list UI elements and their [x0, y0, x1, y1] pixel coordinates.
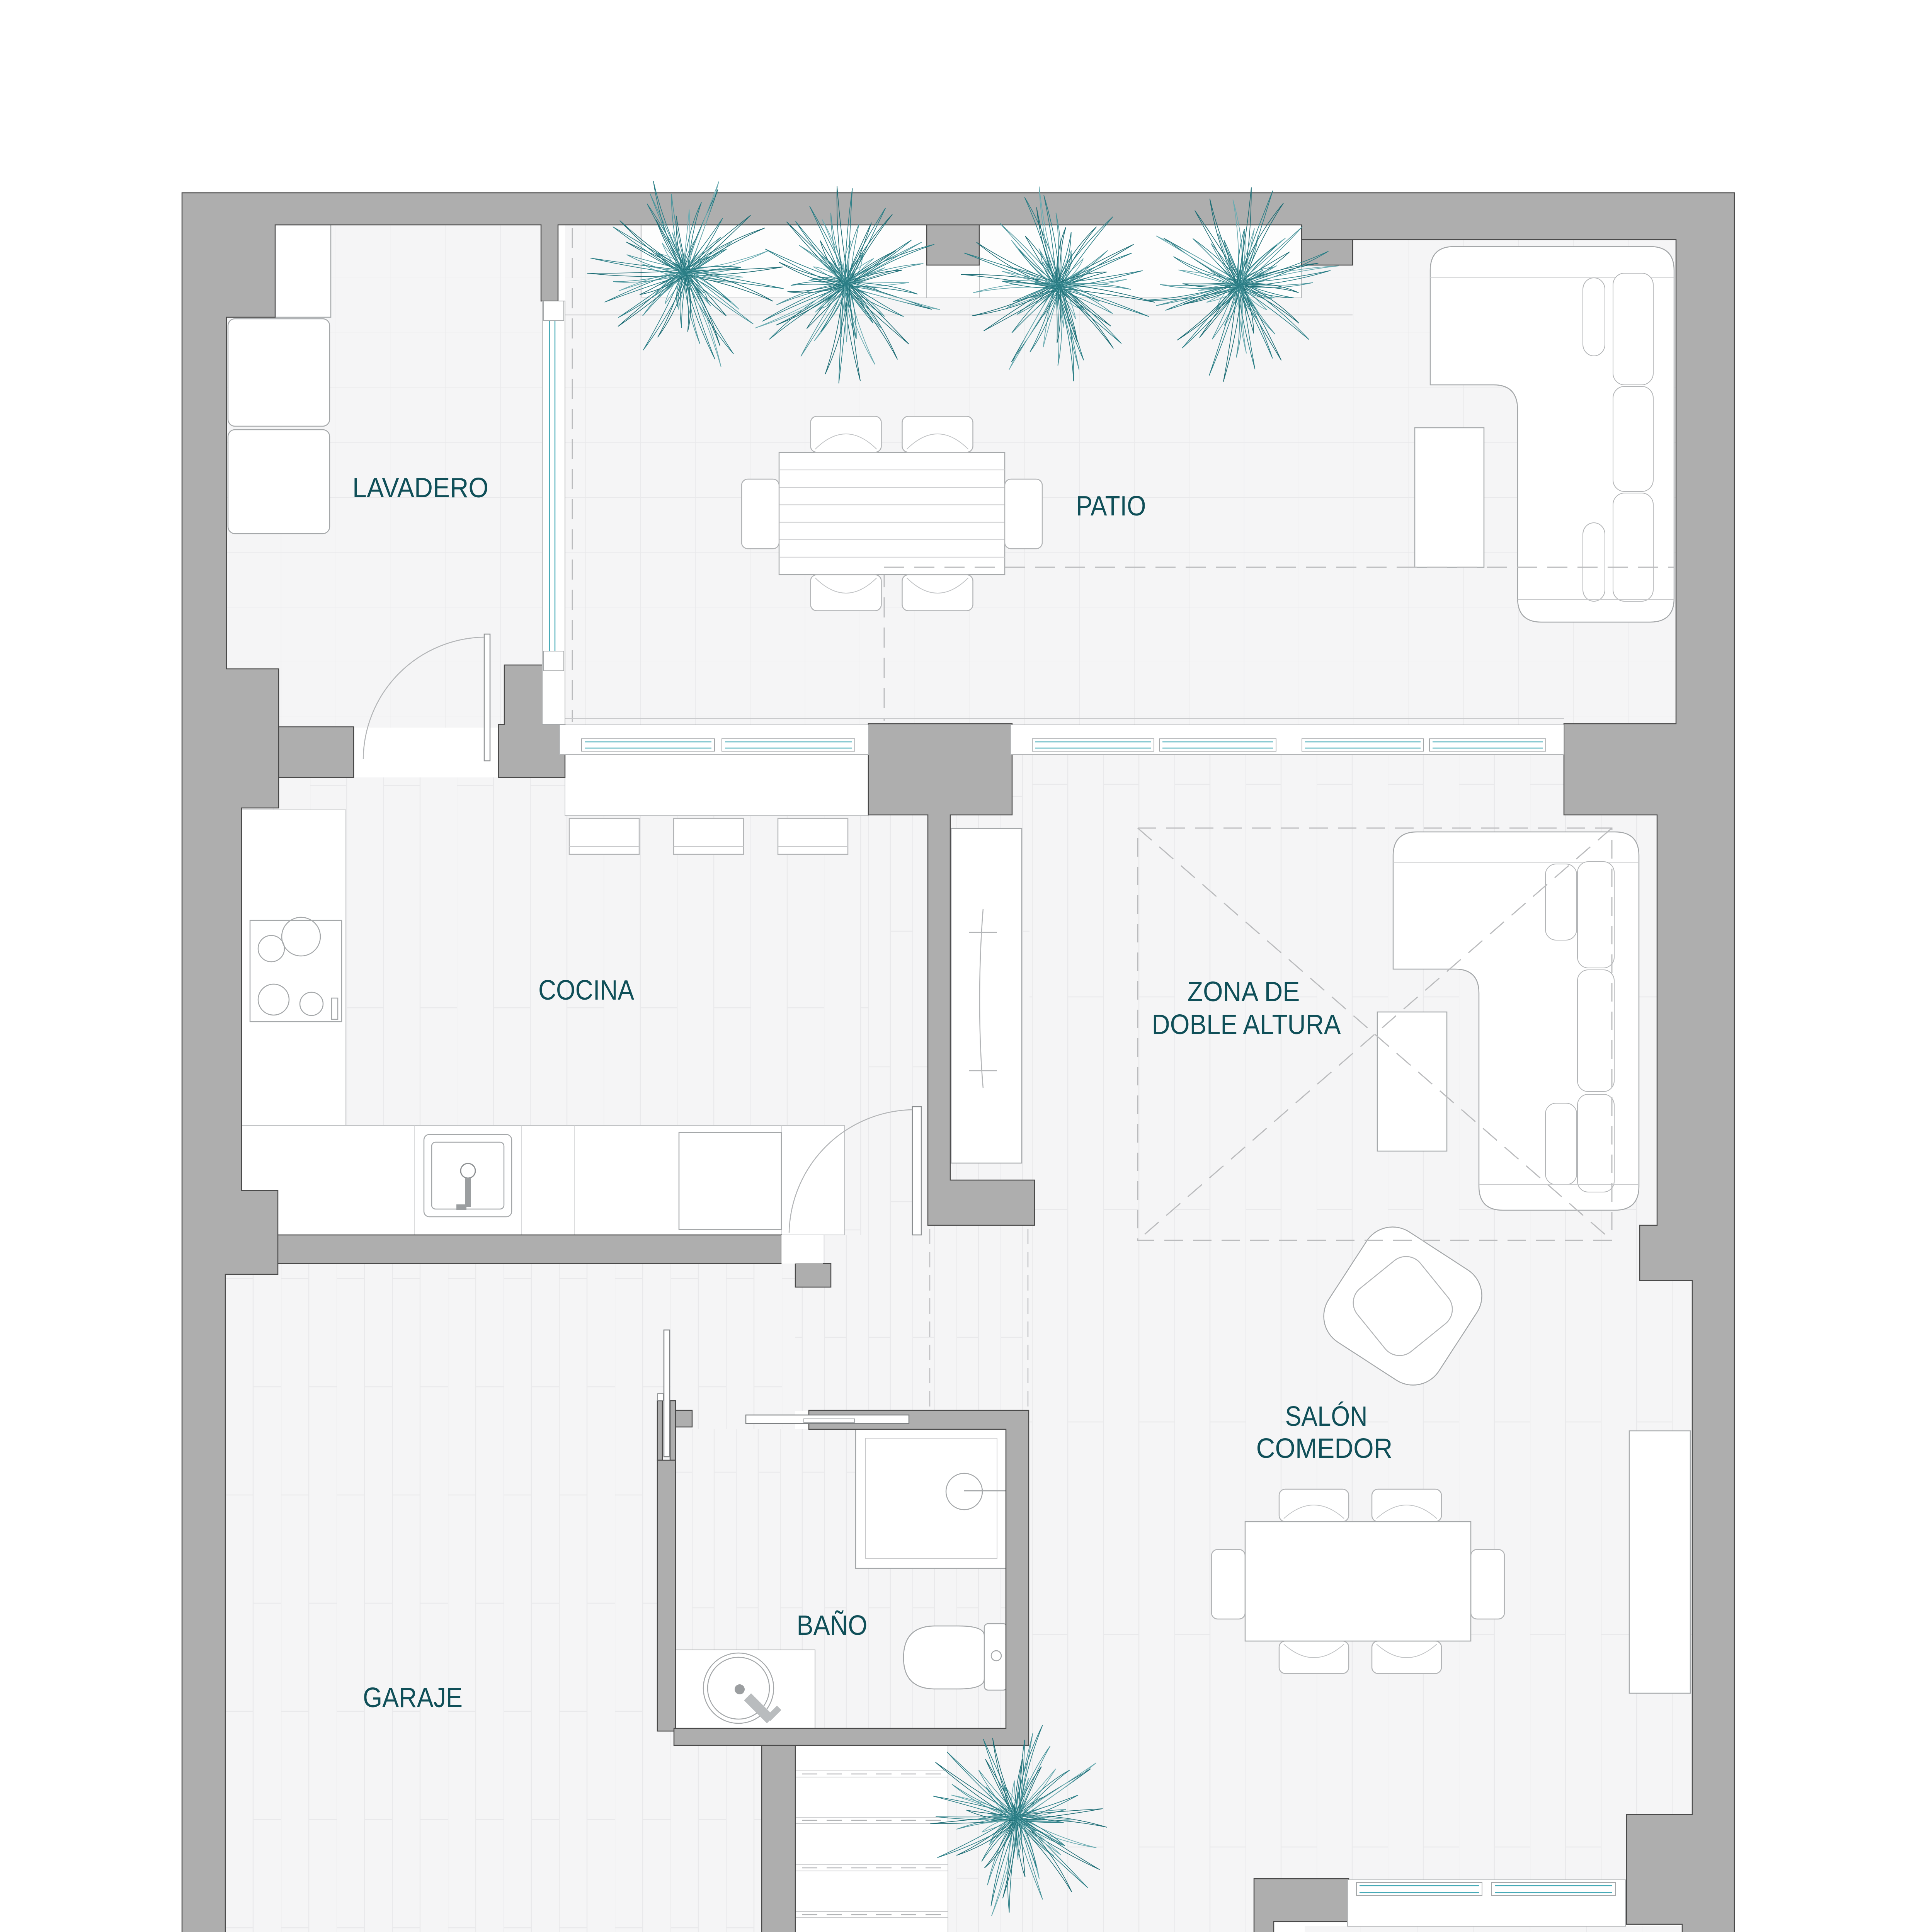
- svg-text:COCINA: COCINA: [538, 975, 634, 1006]
- svg-text:DOBLE ALTURA: DOBLE ALTURA: [1152, 1009, 1341, 1040]
- svg-text:PATIO: PATIO: [1076, 491, 1146, 522]
- svg-text:ZONA DE: ZONA DE: [1188, 976, 1300, 1007]
- svg-text:BAÑO: BAÑO: [797, 1610, 868, 1641]
- svg-text:COMEDOR: COMEDOR: [1256, 1433, 1393, 1464]
- svg-text:LAVADERO: LAVADERO: [352, 473, 488, 503]
- svg-text:SALÓN: SALÓN: [1285, 1401, 1368, 1432]
- svg-text:GARAJE: GARAJE: [363, 1682, 463, 1713]
